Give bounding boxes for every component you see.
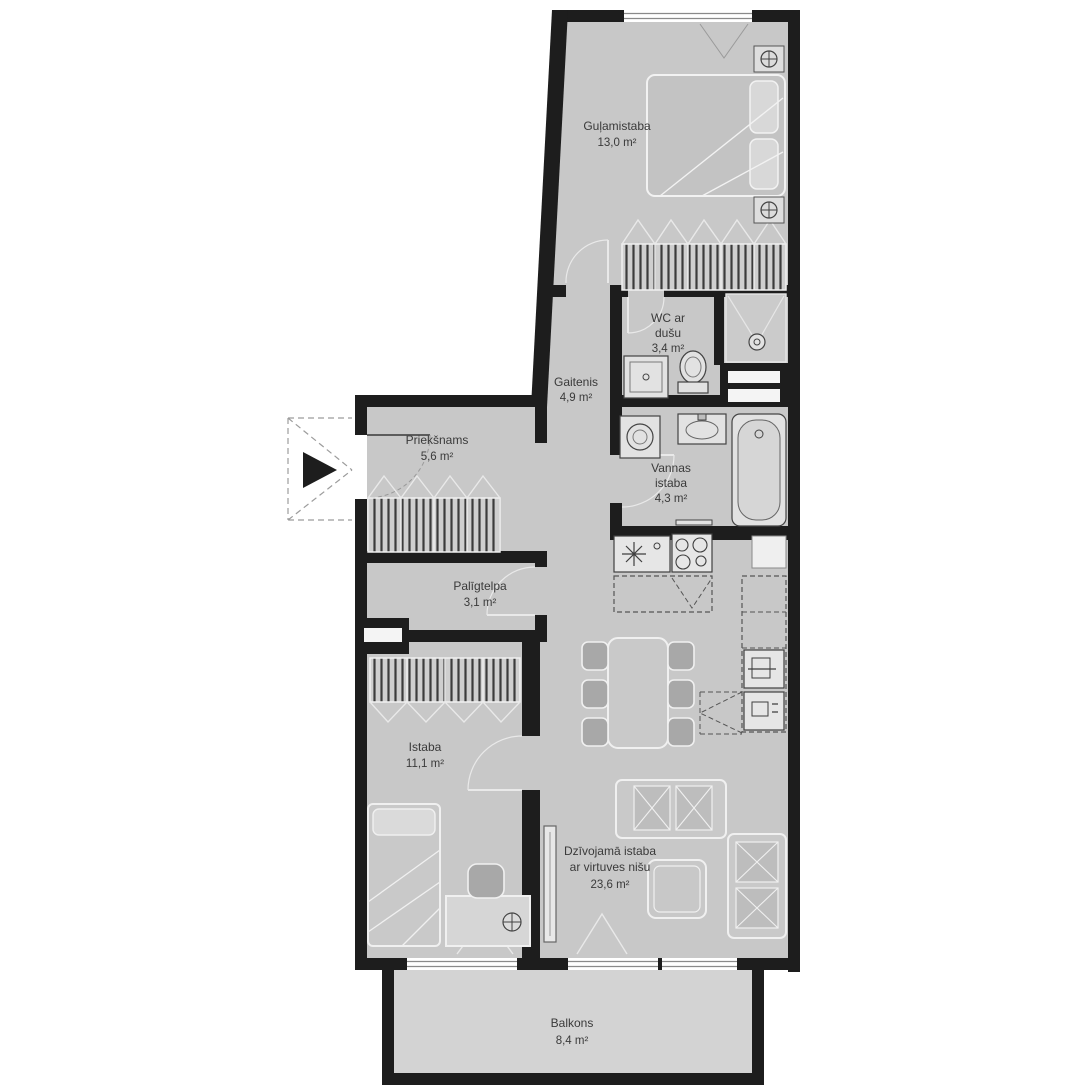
washing-machine-icon — [620, 416, 660, 458]
utility-label: Palīgtelpa — [453, 579, 507, 593]
sink-icon — [678, 414, 726, 444]
entrance-marker — [288, 418, 352, 520]
bedroom-area: 13,0 m² — [598, 137, 637, 149]
living-label: Dzīvojamā istaba — [564, 844, 656, 858]
desk-chair-icon — [468, 864, 504, 898]
entrance-arrow-icon — [303, 452, 337, 488]
toilet-icon — [680, 351, 706, 383]
dining-table-icon — [608, 638, 668, 748]
bedroom-label: Guļamistaba — [583, 119, 651, 133]
hob-icon — [672, 534, 712, 572]
bathroom-label: Vannas — [651, 461, 691, 475]
chair-icon — [668, 680, 694, 708]
floor-plan-drawing: Guļamistaba 13,0 m² WC ar dušu 3,4 m² Ga… — [0, 0, 1088, 1088]
living-area: 23,6 m² — [591, 879, 630, 891]
room-area: 11,1 m² — [406, 758, 444, 770]
armchair-icon — [728, 834, 786, 938]
fridge-icon — [744, 650, 784, 688]
chair-icon — [668, 718, 694, 746]
chair-icon — [582, 680, 608, 708]
pillow-icon — [750, 81, 778, 133]
balcony-label: Balkons — [551, 1016, 594, 1030]
entry-area: 5,6 m² — [421, 451, 454, 463]
single-bed-icon — [368, 804, 440, 946]
corridor-label: Gaitenis — [554, 375, 598, 389]
living-label-2: ar virtuves nišu — [570, 860, 651, 874]
corridor-area: 4,9 m² — [560, 392, 593, 404]
counter-icon — [752, 536, 786, 568]
sofa-icon — [616, 780, 726, 838]
bathroom-area: 4,3 m² — [655, 493, 688, 505]
pillow-icon — [750, 139, 778, 189]
chair-icon — [582, 718, 608, 746]
tv-bench-icon — [544, 826, 556, 942]
entry-label: Priekšnams — [406, 433, 469, 447]
room-label: Istaba — [409, 740, 442, 754]
kitchen-sink-icon — [614, 536, 670, 572]
wc-label: WC ar — [651, 311, 685, 325]
wc-area: 3,4 m² — [652, 343, 685, 355]
balcony-area: 8,4 m² — [556, 1035, 589, 1047]
utility-area: 3,1 m² — [464, 597, 497, 609]
chair-icon — [582, 642, 608, 670]
floor-plan-page: Guļamistaba 13,0 m² WC ar dušu 3,4 m² Ga… — [0, 0, 1088, 1088]
shower-cabin-icon — [726, 294, 786, 362]
chair-icon — [668, 642, 694, 670]
bathroom-label-2: istaba — [655, 476, 687, 490]
bathtub-icon — [732, 414, 786, 526]
towel-rail-icon — [676, 520, 712, 525]
wc-label-2: dušu — [655, 326, 681, 340]
oven-icon — [744, 692, 784, 730]
